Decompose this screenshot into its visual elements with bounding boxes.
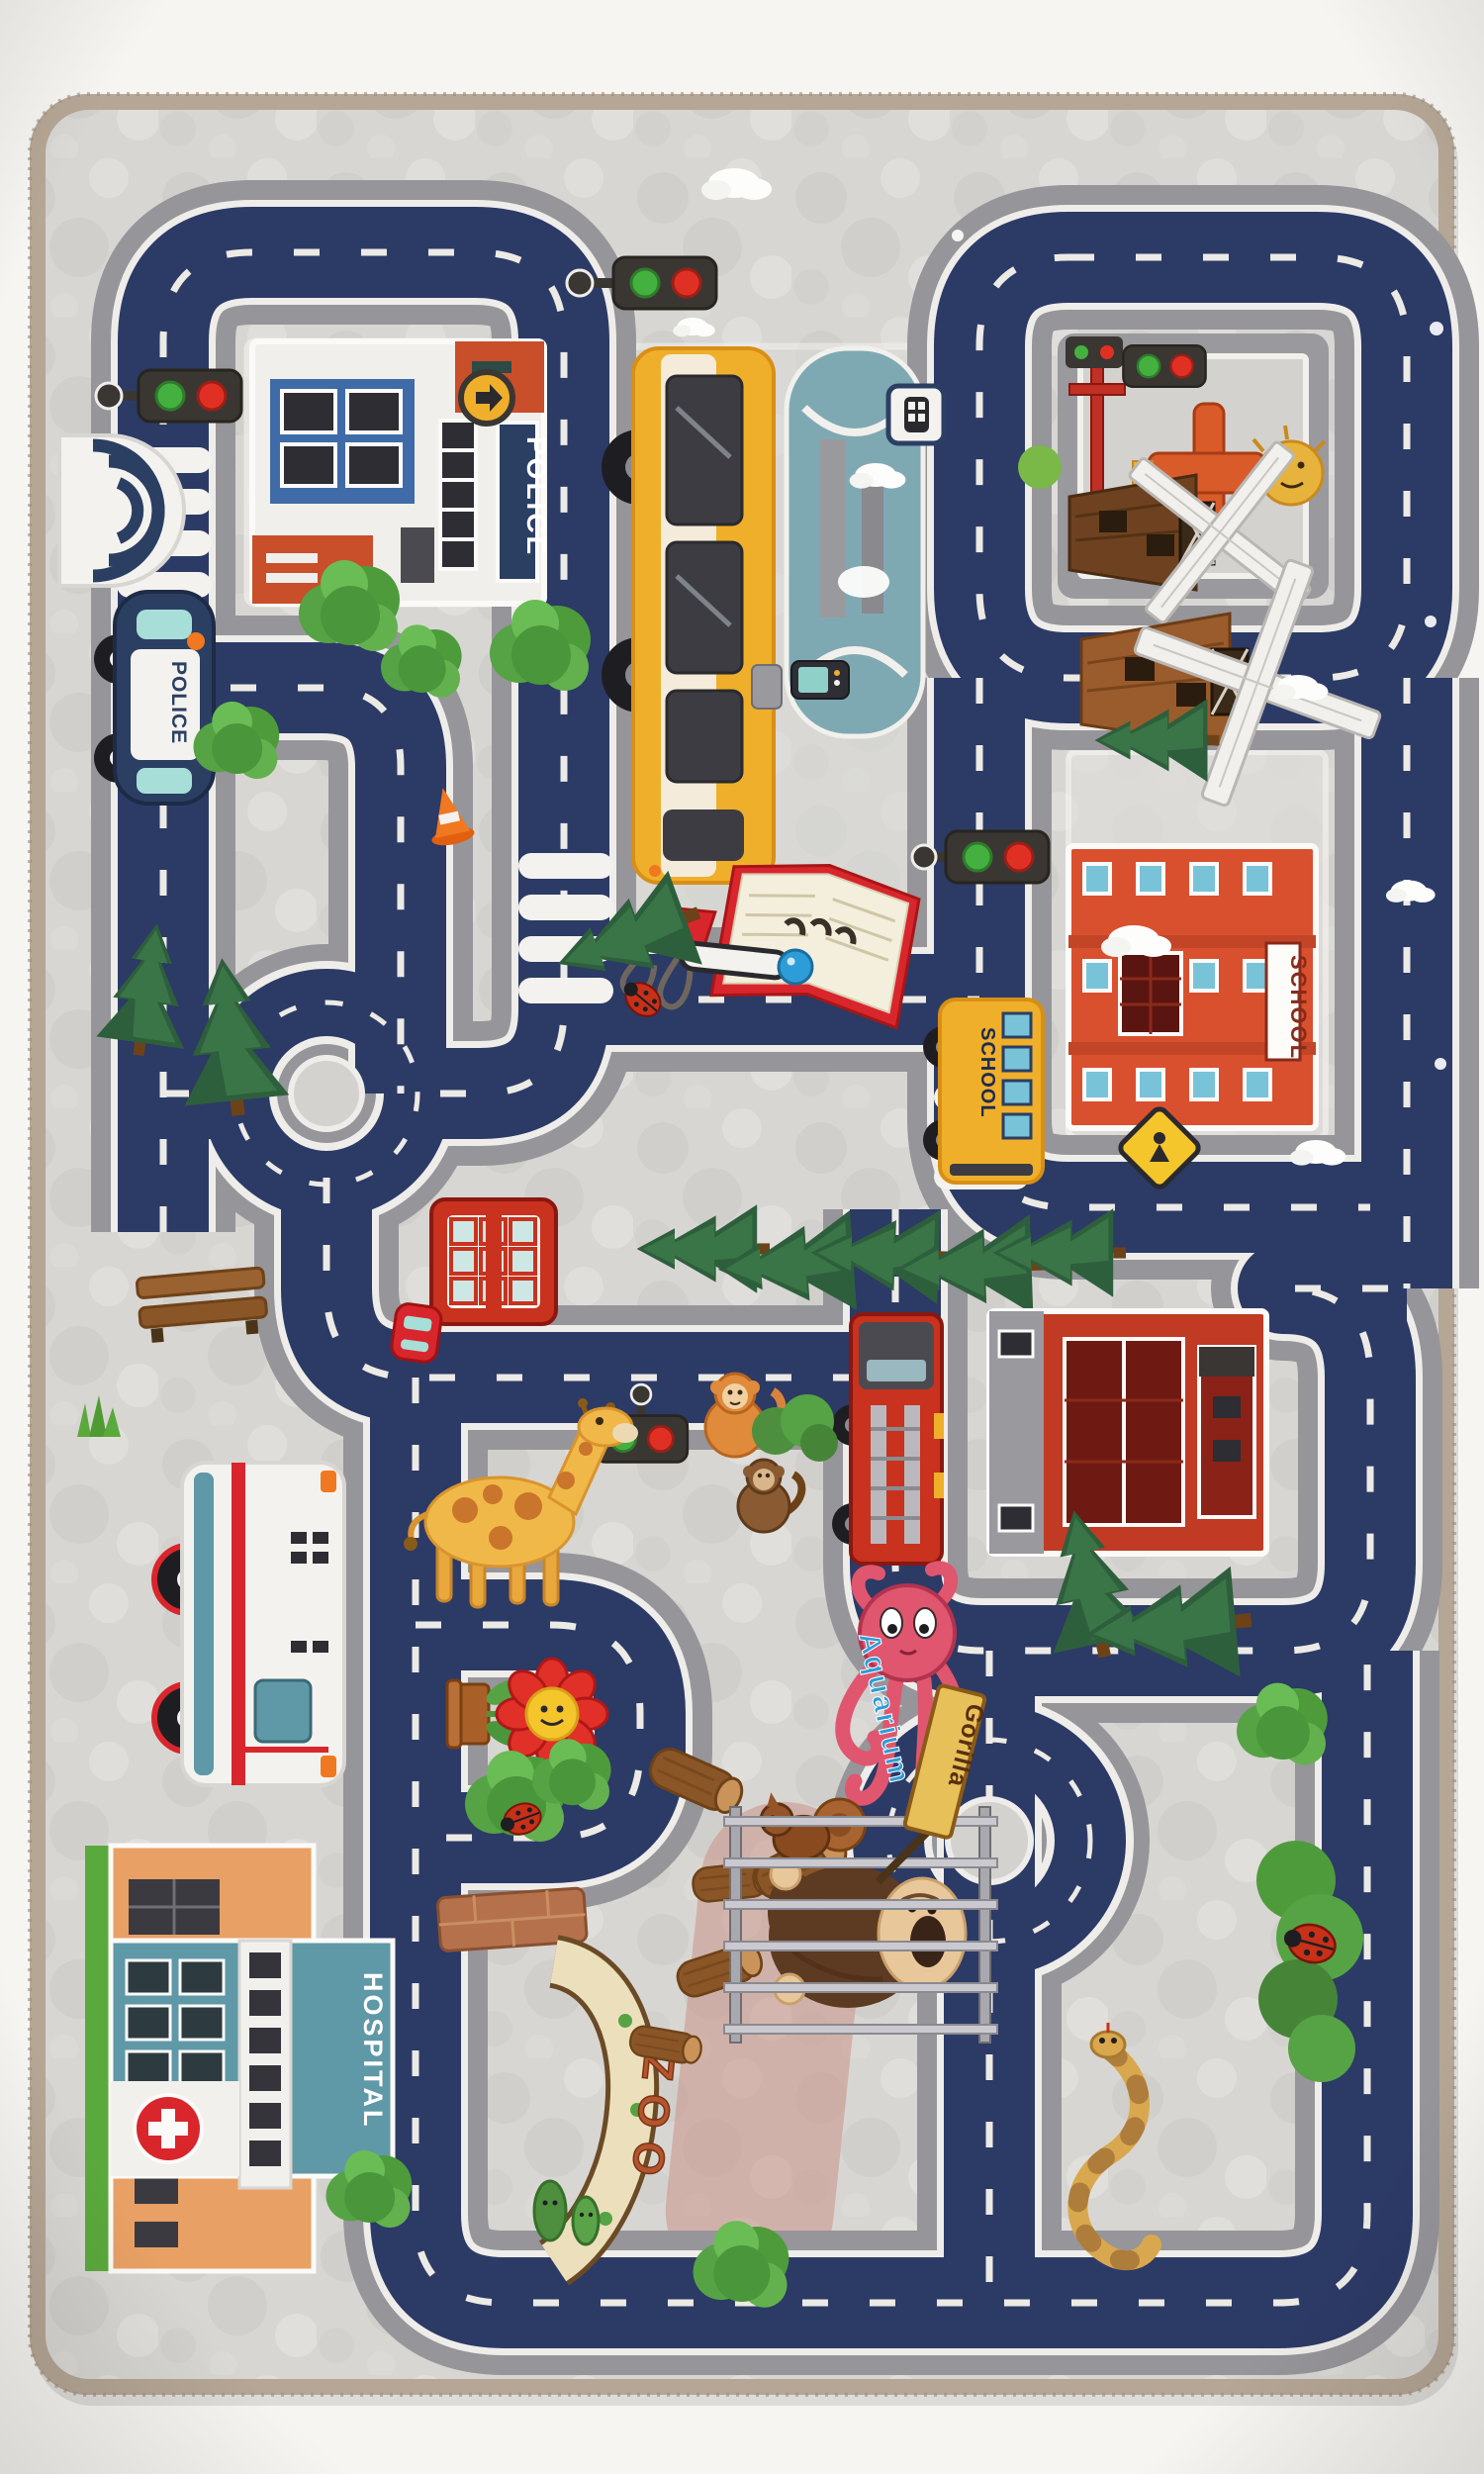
rug-photo: POLICE	[0, 0, 1484, 2474]
rug-art: POLICE	[0, 0, 1484, 2474]
photo-vignette	[0, 0, 1484, 2474]
